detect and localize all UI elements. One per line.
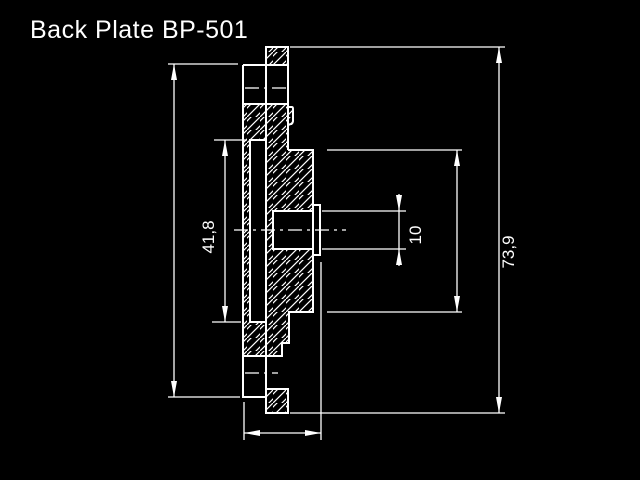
dimension-label-overall: 73,9 bbox=[499, 235, 518, 268]
technical-drawing-canvas: 41,8 10 73,9 Back Plate BP-501 bbox=[0, 0, 640, 480]
drawing-page: 41,8 10 73,9 Back Plate BP-501 bbox=[0, 0, 640, 480]
drawing-title: Back Plate BP-501 bbox=[30, 16, 248, 44]
bottom-tab-hatch bbox=[266, 389, 288, 413]
groove-void bbox=[250, 140, 266, 322]
dimension-label-groove: 41,8 bbox=[199, 220, 218, 253]
dimension-label-bore: 10 bbox=[406, 226, 425, 245]
top-tab-hatch bbox=[266, 47, 288, 65]
